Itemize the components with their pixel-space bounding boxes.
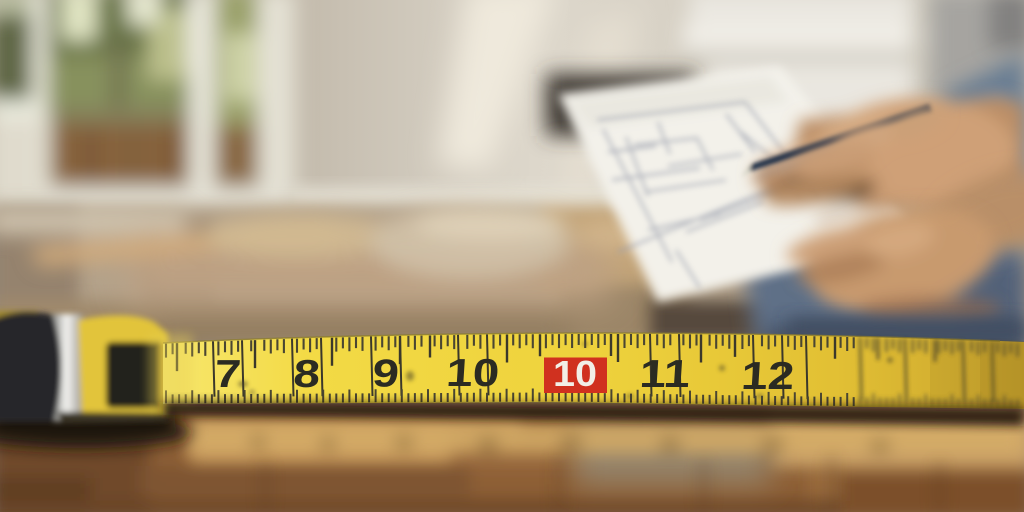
svg-text:12: 12 [740, 355, 796, 398]
svg-text:7: 7 [213, 353, 242, 396]
svg-text:9: 9 [371, 352, 400, 395]
svg-text:11: 11 [638, 353, 691, 396]
svg-text:8: 8 [292, 353, 321, 396]
svg-text:10: 10 [553, 355, 597, 395]
svg-text:10: 10 [445, 352, 501, 395]
